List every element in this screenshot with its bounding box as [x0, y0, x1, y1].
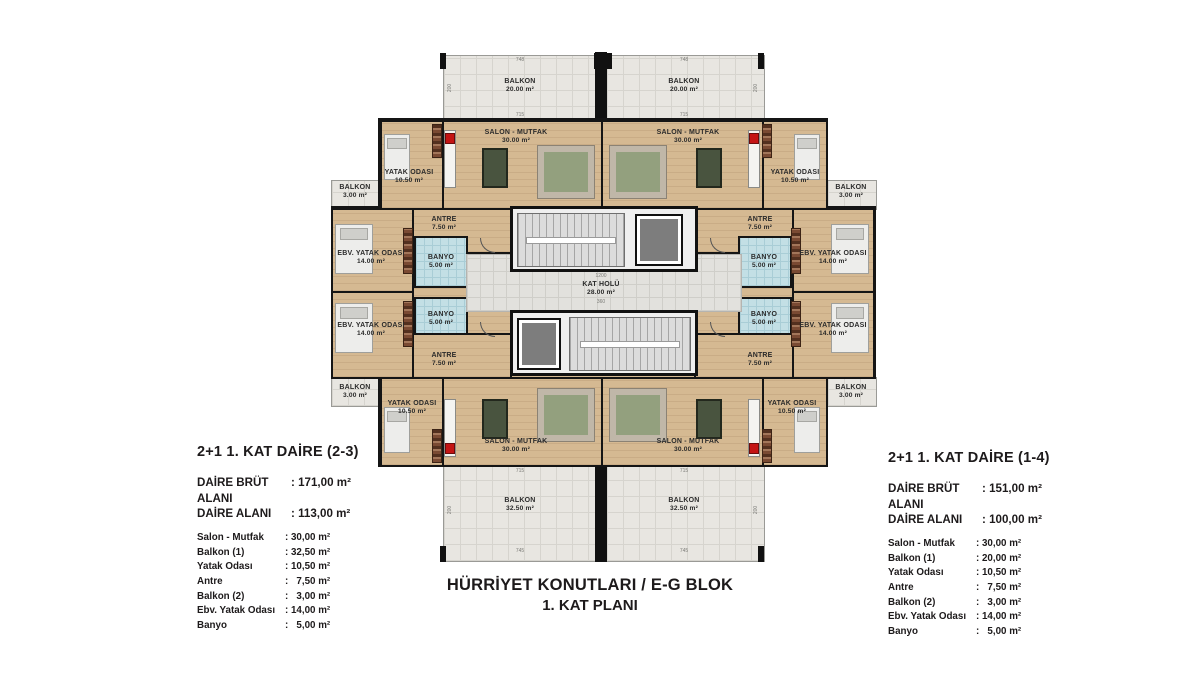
floor-name: 1. KAT PLANI: [434, 597, 746, 614]
dining-table: [696, 148, 722, 188]
elevator-bottom: [517, 318, 561, 370]
sofa-rug: [538, 146, 594, 198]
room-label-banyo-bottom-right: BANYO5.00 m²: [751, 310, 777, 328]
room-area-row: Balkon (1): 20,00 m²: [888, 552, 1123, 567]
room-area-row: Salon - Mutfak: 30,00 m²: [197, 531, 432, 546]
plan-title: HÜRRİYET KONUTLARI / E-G BLOK 1. KAT PLA…: [434, 576, 746, 614]
dimension-label: 200: [447, 506, 453, 514]
room-label-ebv-top-left: EBV. YATAK ODASI14.00 m²: [337, 249, 404, 267]
room-antre-bottom-left: [412, 333, 512, 379]
dimension-label: 360: [597, 299, 605, 305]
dimension-label: 715: [680, 112, 688, 118]
wall-stub: [758, 546, 764, 562]
room-area-row: Banyo: 5,00 m²: [197, 619, 432, 634]
room-antre-bottom-right: [694, 333, 794, 379]
net-area-row: DAİRE ALANI: 113,00 m²: [197, 506, 432, 522]
room-label-balkon-side-right-top: BALKON3.00 m²: [835, 183, 866, 201]
room-area-row: Yatak Odası: 10,50 m²: [888, 566, 1123, 581]
room-label-antre-top-left: ANTRE7.50 m²: [431, 215, 456, 233]
stove: [749, 133, 759, 144]
room-label-banyo-top-left: BANYO5.00 m²: [428, 253, 454, 271]
room-label-ebv-top-right: EBV. YATAK ODASI14.00 m²: [799, 249, 866, 267]
room-area-row: Antre: 7,50 m²: [197, 575, 432, 590]
dining-table: [482, 399, 508, 439]
sofa-rug: [610, 389, 666, 441]
room-area-row: Balkon (1): 32,50 m²: [197, 546, 432, 561]
room-label-salon-bottom-left: SALON - MUTFAK30.00 m²: [485, 437, 548, 455]
wall-stub: [606, 53, 612, 69]
wardrobe: [762, 429, 772, 463]
room-area-row: Balkon (2): 3,00 m²: [888, 596, 1123, 611]
staircase-bottom: [569, 317, 691, 371]
room-label-yatak-top-left: YATAK ODASI10.50 m²: [385, 168, 434, 186]
floor-plan-page: BALKON20.00 m² BALKON20.00 m² SALON - MU…: [0, 0, 1200, 674]
wardrobe: [762, 124, 772, 158]
room-label-antre-top-right: ANTRE7.50 m²: [747, 215, 772, 233]
stair-landing: [526, 237, 615, 244]
room-label-antre-bottom-left: ANTRE7.50 m²: [431, 351, 456, 369]
room-area-row: Antre: 7,50 m²: [888, 581, 1123, 596]
room-label-banyo-bottom-left: BANYO5.00 m²: [428, 310, 454, 328]
stove: [445, 443, 455, 454]
dimension-label: 715: [516, 468, 524, 474]
apartment-title-right: 2+1 1. KAT DAİRE (1-4): [888, 450, 1123, 466]
room-area-row: Banyo: 5,00 m²: [888, 625, 1123, 640]
dimension-label: 1200: [595, 273, 606, 279]
staircase-top: [517, 213, 625, 267]
room-area-list: Salon - Mutfak: 30,00 m² Balkon (1): 32,…: [197, 531, 432, 634]
room-label-balkon-side-left-top: BALKON3.00 m²: [339, 183, 370, 201]
room-area-row: Balkon (2): 3,00 m²: [197, 590, 432, 605]
apartment-info-left: 2+1 1. KAT DAİRE (2-3) DAİRE BRÜT ALANI:…: [197, 444, 432, 634]
dimension-label: 748: [680, 57, 688, 63]
room-label-antre-bottom-right: ANTRE7.50 m²: [747, 351, 772, 369]
stove: [749, 443, 759, 454]
room-label-salon-bottom-right: SALON - MUTFAK30.00 m²: [657, 437, 720, 455]
dining-table: [696, 399, 722, 439]
room-label-balkon-side-right-bottom: BALKON3.00 m²: [835, 383, 866, 401]
dimension-label: 200: [753, 84, 759, 92]
room-label-salon-top-right: SALON - MUTFAK30.00 m²: [657, 128, 720, 146]
apartment-info-right: 2+1 1. KAT DAİRE (1-4) DAİRE BRÜT ALANI:…: [888, 450, 1123, 640]
wardrobe: [432, 124, 442, 158]
dimension-label: 715: [680, 468, 688, 474]
elevator-top: [635, 214, 683, 266]
room-area-row: Salon - Mutfak: 30,00 m²: [888, 537, 1123, 552]
room-label-balkon-bottom-right: BALKON32.50 m²: [668, 496, 699, 514]
room-label-balkon-top-left: BALKON20.00 m²: [504, 77, 535, 95]
project-name: HÜRRİYET KONUTLARI / E-G BLOK: [434, 576, 746, 595]
room-label-balkon-top-right: BALKON20.00 m²: [668, 77, 699, 95]
gross-area-row: DAİRE BRÜT ALANI: 151,00 m²: [888, 481, 1123, 512]
room-area-row: Ebv. Yatak Odası: 14,00 m²: [197, 604, 432, 619]
sofa-rug: [610, 146, 666, 198]
dimension-label: 745: [680, 548, 688, 554]
gross-area-row: DAİRE BRÜT ALANI: 171,00 m²: [197, 475, 432, 506]
room-label-yatak-bottom-right: YATAK ODASI10.50 m²: [768, 399, 817, 417]
room-area-list: Salon - Mutfak: 30,00 m² Balkon (1): 20,…: [888, 537, 1123, 640]
room-label-banyo-top-right: BANYO5.00 m²: [751, 253, 777, 271]
wall-stub: [440, 53, 446, 69]
net-area-row: DAİRE ALANI: 100,00 m²: [888, 512, 1123, 528]
wall-stub: [594, 53, 600, 69]
stair-landing: [580, 341, 681, 348]
wall-stub: [440, 546, 446, 562]
dimension-label: 200: [753, 506, 759, 514]
wardrobe: [432, 429, 442, 463]
dining-table: [482, 148, 508, 188]
balcony-divider-wall-bottom: [595, 463, 607, 562]
room-label-salon-top-left: SALON - MUTFAK30.00 m²: [485, 128, 548, 146]
stair-core-top: [510, 206, 698, 272]
room-label-balkon-bottom-left: BALKON32.50 m²: [504, 496, 535, 514]
dimension-label: 200: [447, 84, 453, 92]
stove: [445, 133, 455, 144]
room-label-ebv-bottom-right: EBV. YATAK ODASI14.00 m²: [799, 321, 866, 339]
room-label-ebv-bottom-left: EBV. YATAK ODASI14.00 m²: [337, 321, 404, 339]
dimension-label: 748: [516, 57, 524, 63]
room-area-row: Ebv. Yatak Odası: 14,00 m²: [888, 610, 1123, 625]
room-area-row: Yatak Odası: 10,50 m²: [197, 560, 432, 575]
apartment-title-left: 2+1 1. KAT DAİRE (2-3): [197, 444, 432, 460]
room-label-kat-holu: KAT HOLÜ28.00 m²: [582, 280, 619, 298]
stair-core-bottom: [510, 310, 698, 376]
room-label-yatak-bottom-left: YATAK ODASI10.50 m²: [388, 399, 437, 417]
dimension-label: 715: [516, 112, 524, 118]
sofa-rug: [538, 389, 594, 441]
room-label-yatak-top-right: YATAK ODASI10.50 m²: [771, 168, 820, 186]
dimension-label: 745: [516, 548, 524, 554]
wall-stub: [758, 53, 764, 69]
room-label-balkon-side-left-bottom: BALKON3.00 m²: [339, 383, 370, 401]
